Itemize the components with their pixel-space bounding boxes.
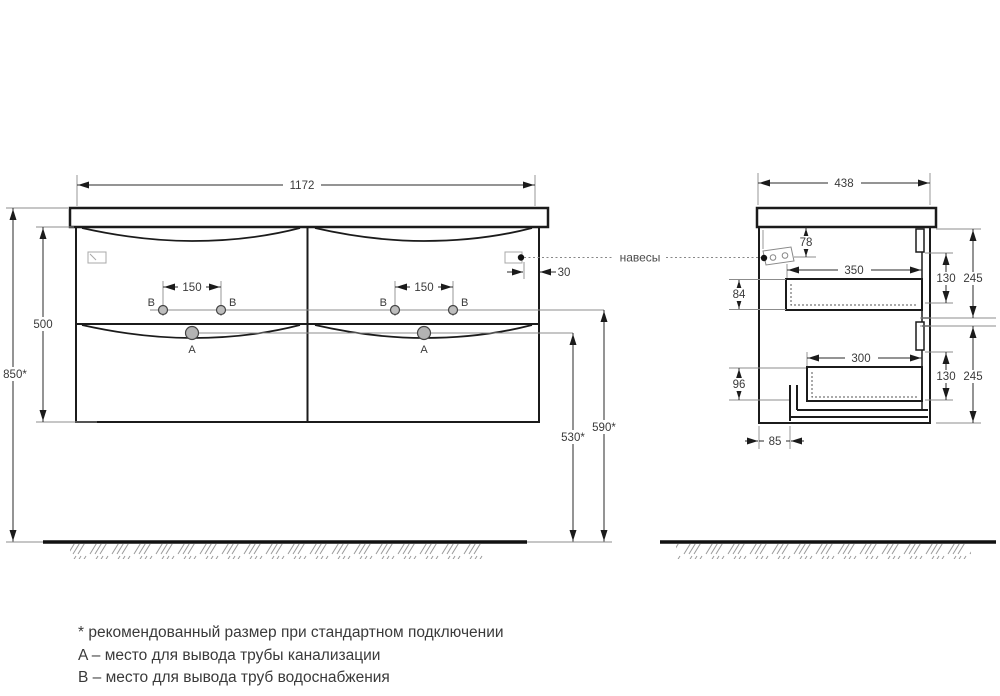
dim-hanger-offset-label: 30 (558, 267, 571, 279)
point-b-circle (449, 306, 458, 315)
point-a-circle (418, 327, 431, 340)
front-countertop (70, 208, 548, 227)
floor-side (660, 542, 996, 559)
point-a-label: A (420, 344, 428, 356)
dim-water-height-label: 590* (592, 422, 616, 434)
dim-total-height-label: 850* (3, 369, 27, 381)
front-reference-lines (6, 175, 604, 422)
wall-hanger-bracket-icon (761, 247, 794, 265)
point-a-circle (186, 327, 199, 340)
front-cabinet-body (76, 227, 539, 422)
dim-top-drawer-height-label: 84 (733, 289, 746, 301)
note-point-a: A – место для вывода трубы канализации (78, 645, 504, 668)
dim-tap-spacing-label: 150 (414, 282, 433, 294)
bottom-panel-channel (790, 385, 928, 421)
dim-section-top-label: 245 (963, 273, 982, 285)
side-dimensions (739, 183, 973, 441)
dim-drain-height-label: 530* (561, 432, 585, 444)
hanger-icon-left (88, 252, 106, 263)
note-point-b: B – место для вывода труб водоснабжения (78, 667, 504, 690)
point-b-label: B (229, 297, 236, 309)
side-countertop (757, 208, 936, 227)
dim-top-drawer-depth-label: 350 (844, 265, 863, 277)
point-b-circle (159, 306, 168, 315)
point-b-circle (391, 306, 400, 315)
hanger-icon-right (505, 252, 524, 263)
front-view (70, 208, 548, 422)
point-b-label: B (148, 297, 155, 309)
bottom-drawer-box (807, 367, 922, 401)
technical-drawing-page: B B B B A A 1172 500 (0, 0, 1000, 696)
dim-bottom-drawer-depth-label: 300 (851, 353, 870, 365)
dim-bottom-drawer-height-label: 96 (733, 379, 746, 391)
floor-front (6, 542, 612, 559)
front-dimension-labels: 1172 500 850* 590* 530* 150 150 30 (1, 178, 620, 444)
dim-width-label: 1172 (290, 180, 315, 192)
dim-bottom-offset-label: 85 (769, 436, 782, 448)
top-drawer-box (786, 279, 922, 310)
side-dimension-labels: 438 78 350 300 84 96 130 245 130 245 85 (729, 176, 986, 448)
dim-depth-label: 438 (834, 178, 853, 190)
dim-tap-spacing-label: 150 (182, 282, 201, 294)
drawing-canvas: B B B B A A 1172 500 (0, 0, 1000, 600)
point-a-label: A (188, 344, 196, 356)
point-b-circle (217, 306, 226, 315)
dim-front-top-label: 130 (936, 273, 955, 285)
point-b-label: B (461, 297, 468, 309)
dim-hanger-top-label: 78 (800, 237, 813, 249)
point-b-label: B (380, 297, 387, 309)
floor-hatching (70, 544, 485, 559)
dim-front-bottom-label: 130 (936, 371, 955, 383)
floor-hatching (676, 544, 971, 559)
footnotes: * рекомендованный размер при стандартном… (78, 622, 504, 690)
hangers-callout: навесы (524, 250, 763, 265)
side-view (757, 208, 936, 423)
dim-height-label: 500 (33, 319, 52, 331)
hangers-callout-label: навесы (620, 251, 661, 265)
dim-section-bottom-label: 245 (963, 371, 982, 383)
note-recommended-size: * рекомендованный размер при стандартном… (78, 622, 504, 645)
